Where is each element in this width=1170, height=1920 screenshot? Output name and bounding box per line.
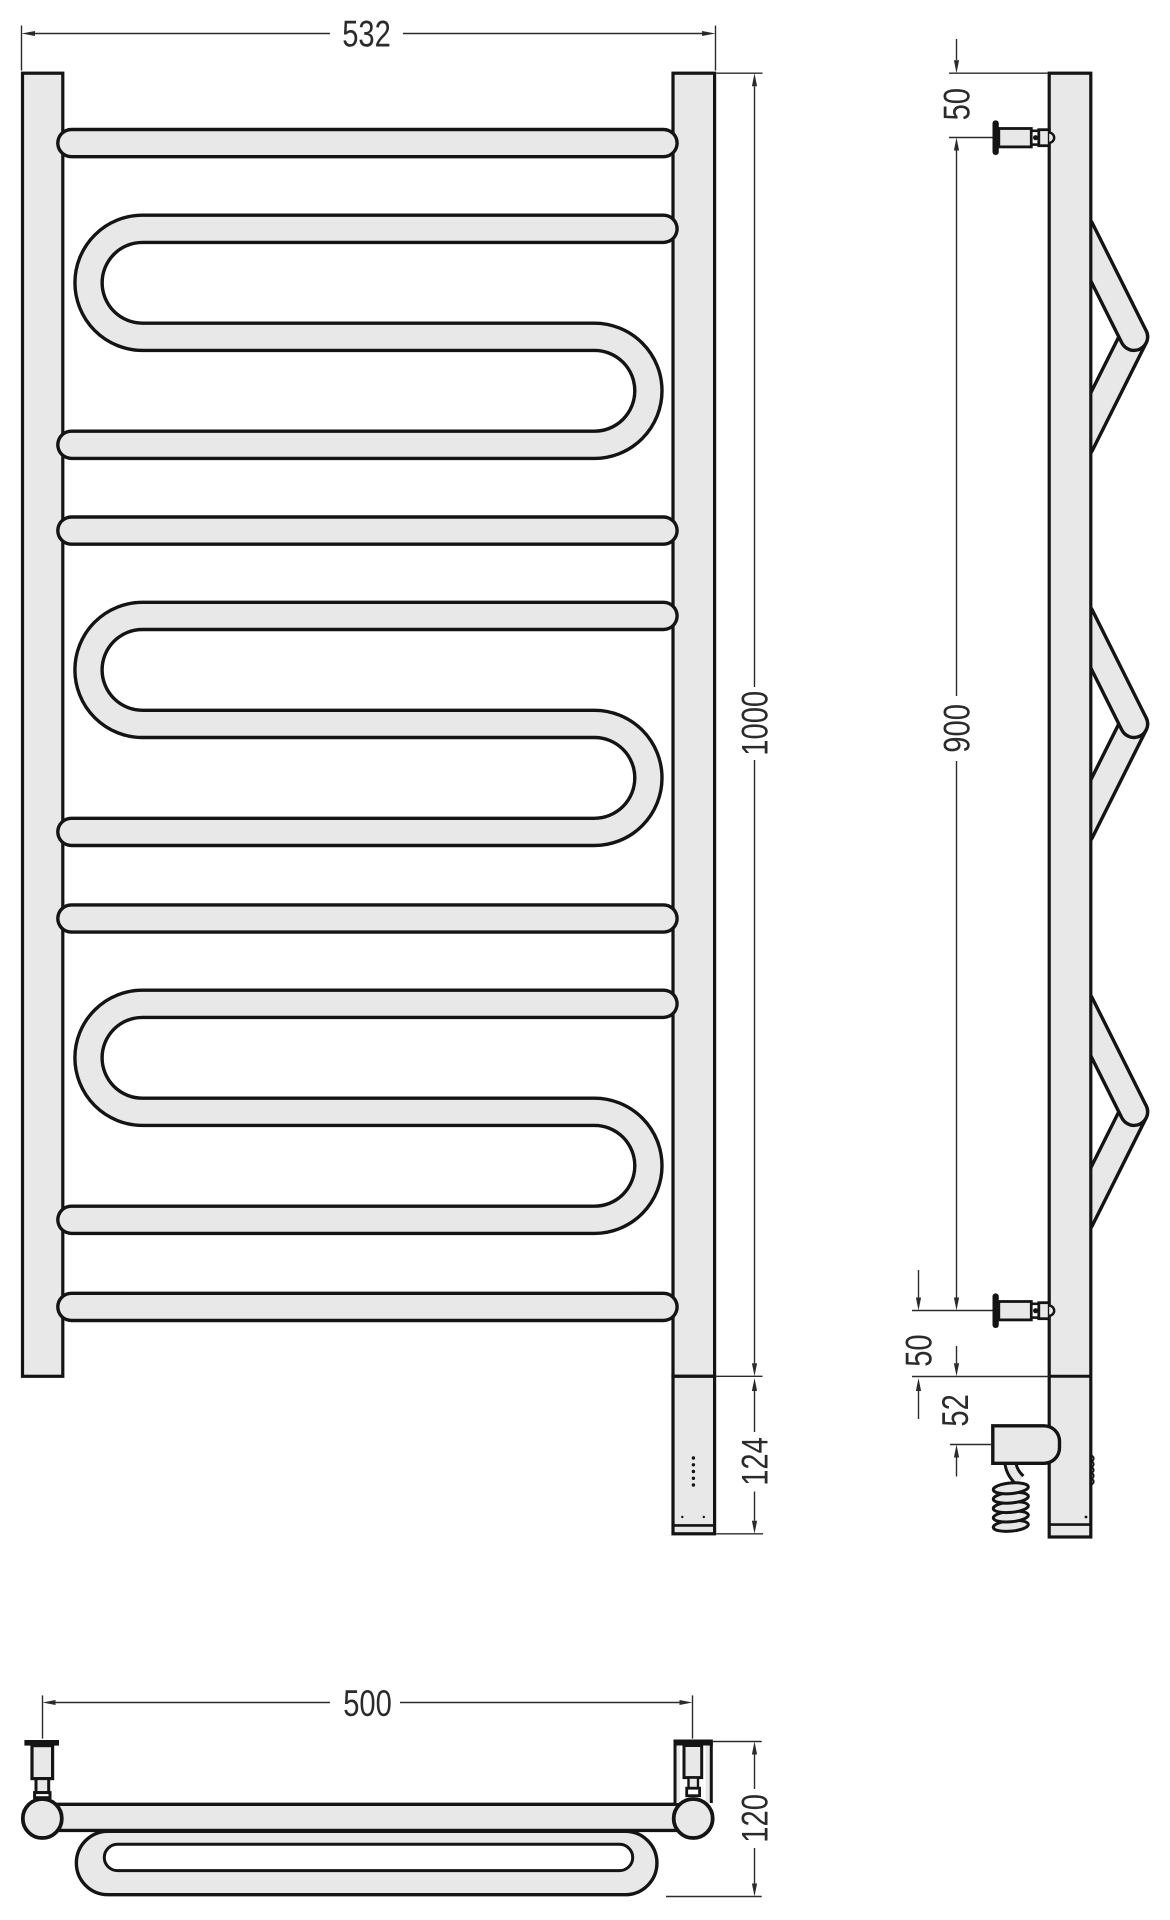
svg-text:500: 500 [343,1682,392,1724]
svg-text:50: 50 [936,88,978,120]
svg-text:120: 120 [733,1794,775,1843]
svg-text:124: 124 [733,1437,775,1486]
svg-text:532: 532 [342,12,391,54]
svg-text:50: 50 [898,1334,940,1366]
svg-text:52: 52 [934,1394,976,1426]
svg-text:900: 900 [936,704,978,753]
svg-text:1000: 1000 [733,691,775,756]
